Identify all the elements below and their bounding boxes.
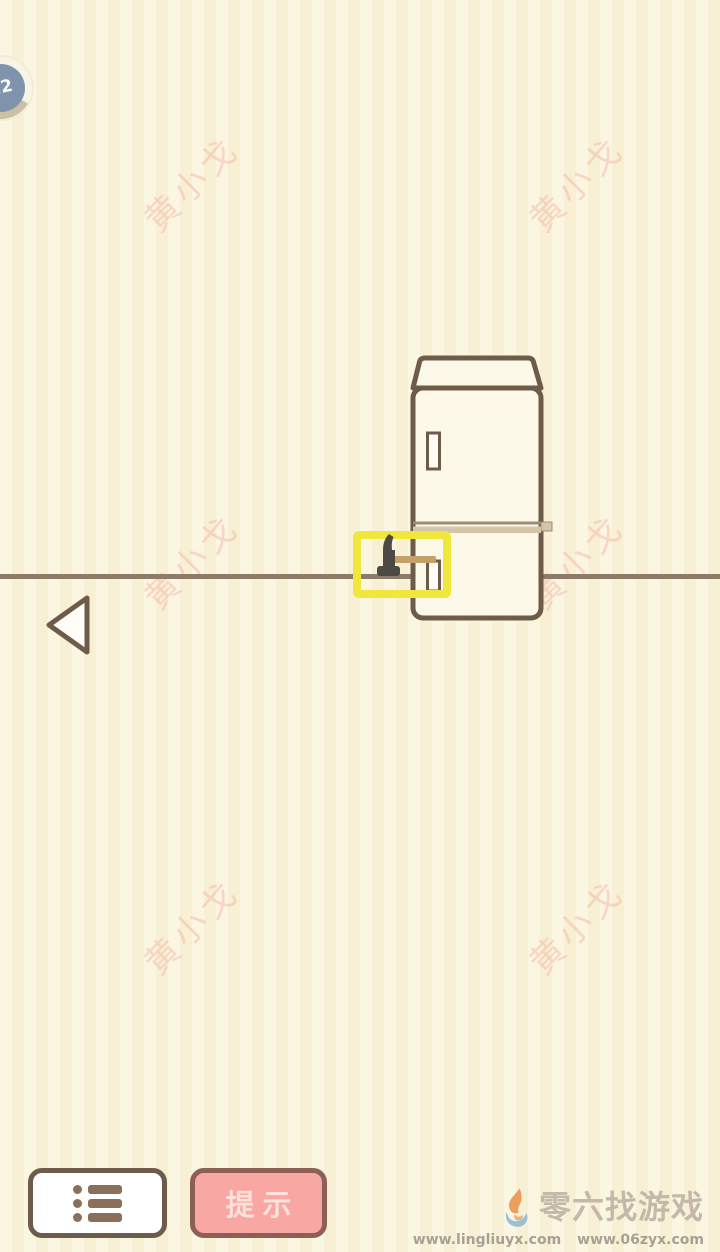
hammer-claw-head xyxy=(383,534,395,568)
back-button[interactable] xyxy=(40,592,96,658)
watermark-text: 黄小戈 xyxy=(516,866,633,983)
flame-swirl-logo-icon xyxy=(501,1186,531,1230)
watermark-text: 黄小戈 xyxy=(131,123,248,240)
watermark-text: 黄小戈 xyxy=(516,123,633,240)
level-badge-circle: 22 xyxy=(0,64,25,112)
level-number: 22 xyxy=(0,76,15,100)
site-watermark: 零六找游戏 www.lingliuyx.com www.06zyx.com xyxy=(413,1186,704,1248)
game-screen: 黄小戈 黄小戈 黄小戈 黄小戈 黄小戈 黄小戈 22 xyxy=(0,0,720,1252)
fridge-upper-handle[interactable] xyxy=(428,433,440,469)
fridge-top-lid xyxy=(413,358,541,388)
hammer-handle xyxy=(392,556,436,563)
hint-button[interactable]: 提示 xyxy=(190,1168,327,1238)
watermark-text: 黄小戈 xyxy=(131,501,248,618)
site-name: 零六找游戏 xyxy=(539,1190,704,1225)
hammer-face xyxy=(377,566,400,576)
back-arrow-icon xyxy=(49,598,87,652)
menu-button[interactable] xyxy=(28,1168,167,1238)
level-badge[interactable]: 22 xyxy=(0,57,32,119)
hammer-item[interactable] xyxy=(372,530,438,580)
fridge-hinge-tab xyxy=(541,522,552,531)
site-url-1: www.lingliuyx.com xyxy=(413,1232,561,1248)
list-icon xyxy=(73,1185,122,1222)
watermark-text: 黄小戈 xyxy=(131,866,248,983)
site-url-2: www.06zyx.com xyxy=(577,1232,704,1248)
